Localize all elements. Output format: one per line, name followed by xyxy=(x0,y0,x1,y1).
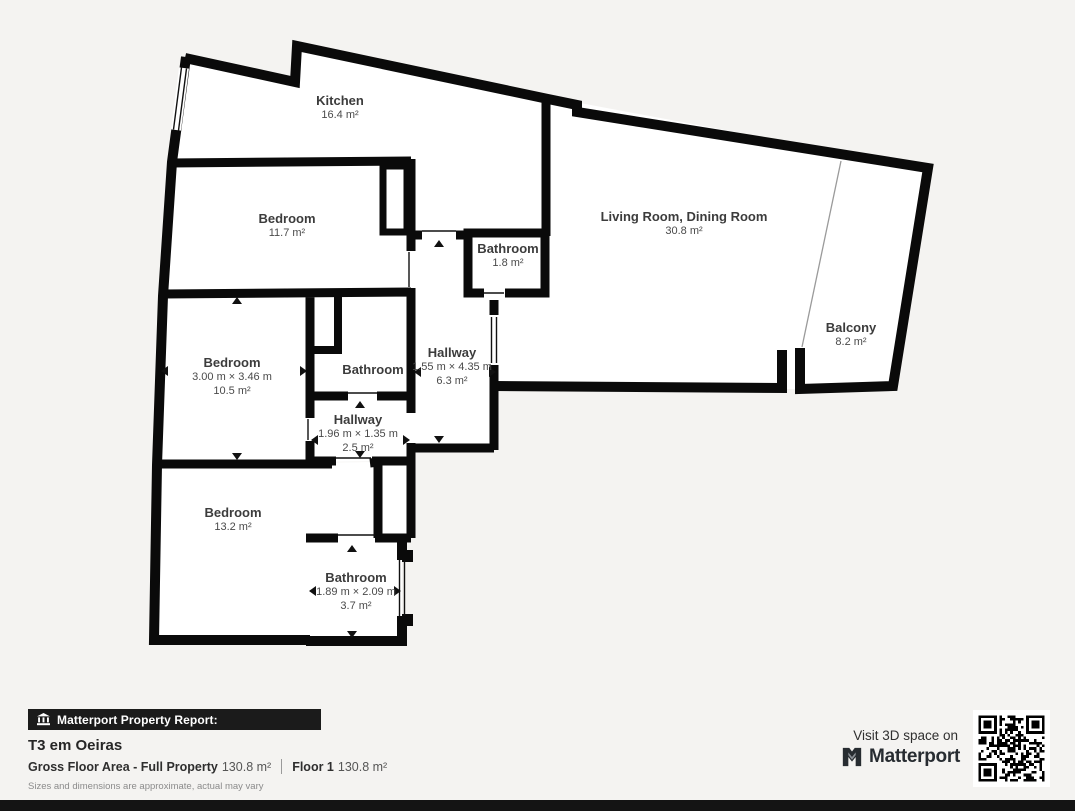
room-floors xyxy=(154,46,928,641)
visit-3d-text: Visit 3D space on xyxy=(853,728,958,743)
room-area: 8.2 m² xyxy=(826,335,877,349)
room-name: Hallway xyxy=(412,345,492,360)
room-dimensions: 3.00 m × 3.46 m xyxy=(192,370,272,384)
gross-floor-label: Gross Floor Area - Full Property xyxy=(28,760,218,774)
room-label-bathroom-bottom: Bathroom 1.89 m × 2.09 m 3.7 m² xyxy=(316,570,396,613)
room-area: 1.8 m² xyxy=(477,256,538,270)
matterport-logo-icon xyxy=(841,746,863,768)
property-title: T3 em Oeiras xyxy=(28,737,122,754)
room-area: 10.5 m² xyxy=(192,384,272,398)
room-label-hallway-long: Hallway 1.55 m × 4.35 m 6.3 m² xyxy=(412,345,492,388)
banner-label: Matterport Property Report: xyxy=(57,713,218,727)
closet-box xyxy=(383,166,407,232)
building-icon xyxy=(37,713,50,726)
qr-code xyxy=(973,710,1050,787)
room-name: Bedroom xyxy=(258,211,315,226)
room-dimensions: 1.89 m × 2.09 m xyxy=(316,585,396,599)
room-name: Hallway xyxy=(318,412,398,427)
room-dimensions: 1.55 m × 4.35 m xyxy=(412,360,492,374)
matterport-logo-text: Matterport xyxy=(869,746,960,768)
gross-floor-value: 130.8 m² xyxy=(222,760,271,774)
room-label-bedroom-middle: Bedroom 3.00 m × 3.46 m 10.5 m² xyxy=(192,355,272,398)
floor-plan xyxy=(0,0,1075,811)
room-area: 13.2 m² xyxy=(204,520,261,534)
room-label-living-dining: Living Room, Dining Room 30.8 m² xyxy=(601,209,768,238)
room-name: Kitchen xyxy=(316,93,364,108)
room-name: Bathroom xyxy=(477,241,538,256)
stats-divider xyxy=(281,759,282,774)
room-area: 16.4 m² xyxy=(316,108,364,122)
room-label-kitchen: Kitchen 16.4 m² xyxy=(316,93,364,122)
room-name: Bedroom xyxy=(204,505,261,520)
room-label-bathroom-small: Bathroom 1.8 m² xyxy=(477,241,538,270)
room-label-bathroom-middle: Bathroom xyxy=(342,362,403,377)
matterport-promo: Visit 3D space on Matterport xyxy=(830,728,960,768)
property-report-page: Kitchen 16.4 m² Bedroom 11.7 m² Bathroom… xyxy=(0,0,1075,811)
report-banner: Matterport Property Report: xyxy=(28,709,321,730)
room-area: 2.5 m² xyxy=(318,441,398,455)
room-area: 30.8 m² xyxy=(601,224,768,238)
room-name: Bedroom xyxy=(192,355,272,370)
room-dimensions: 1.96 m × 1.35 m xyxy=(318,427,398,441)
room-label-bedroom-bottom: Bedroom 13.2 m² xyxy=(204,505,261,534)
room-name: Balcony xyxy=(826,320,877,335)
area-stats: Gross Floor Area - Full Property 130.8 m… xyxy=(28,759,387,774)
room-label-hallway-small: Hallway 1.96 m × 1.35 m 2.5 m² xyxy=(318,412,398,455)
room-area: 6.3 m² xyxy=(412,374,492,388)
disclaimer-text: Sizes and dimensions are approximate, ac… xyxy=(28,781,264,792)
floor-value: 130.8 m² xyxy=(338,760,387,774)
room-area: 3.7 m² xyxy=(316,599,396,613)
room-name: Bathroom xyxy=(342,362,403,377)
room-label-balcony: Balcony 8.2 m² xyxy=(826,320,877,349)
bottom-black-bar xyxy=(0,800,1075,811)
floor-label: Floor 1 xyxy=(292,760,334,774)
room-label-bedroom-top: Bedroom 11.7 m² xyxy=(258,211,315,240)
room-area: 11.7 m² xyxy=(258,226,315,240)
room-name: Living Room, Dining Room xyxy=(601,209,768,224)
matterport-logo: Matterport xyxy=(841,746,960,768)
room-name: Bathroom xyxy=(316,570,396,585)
